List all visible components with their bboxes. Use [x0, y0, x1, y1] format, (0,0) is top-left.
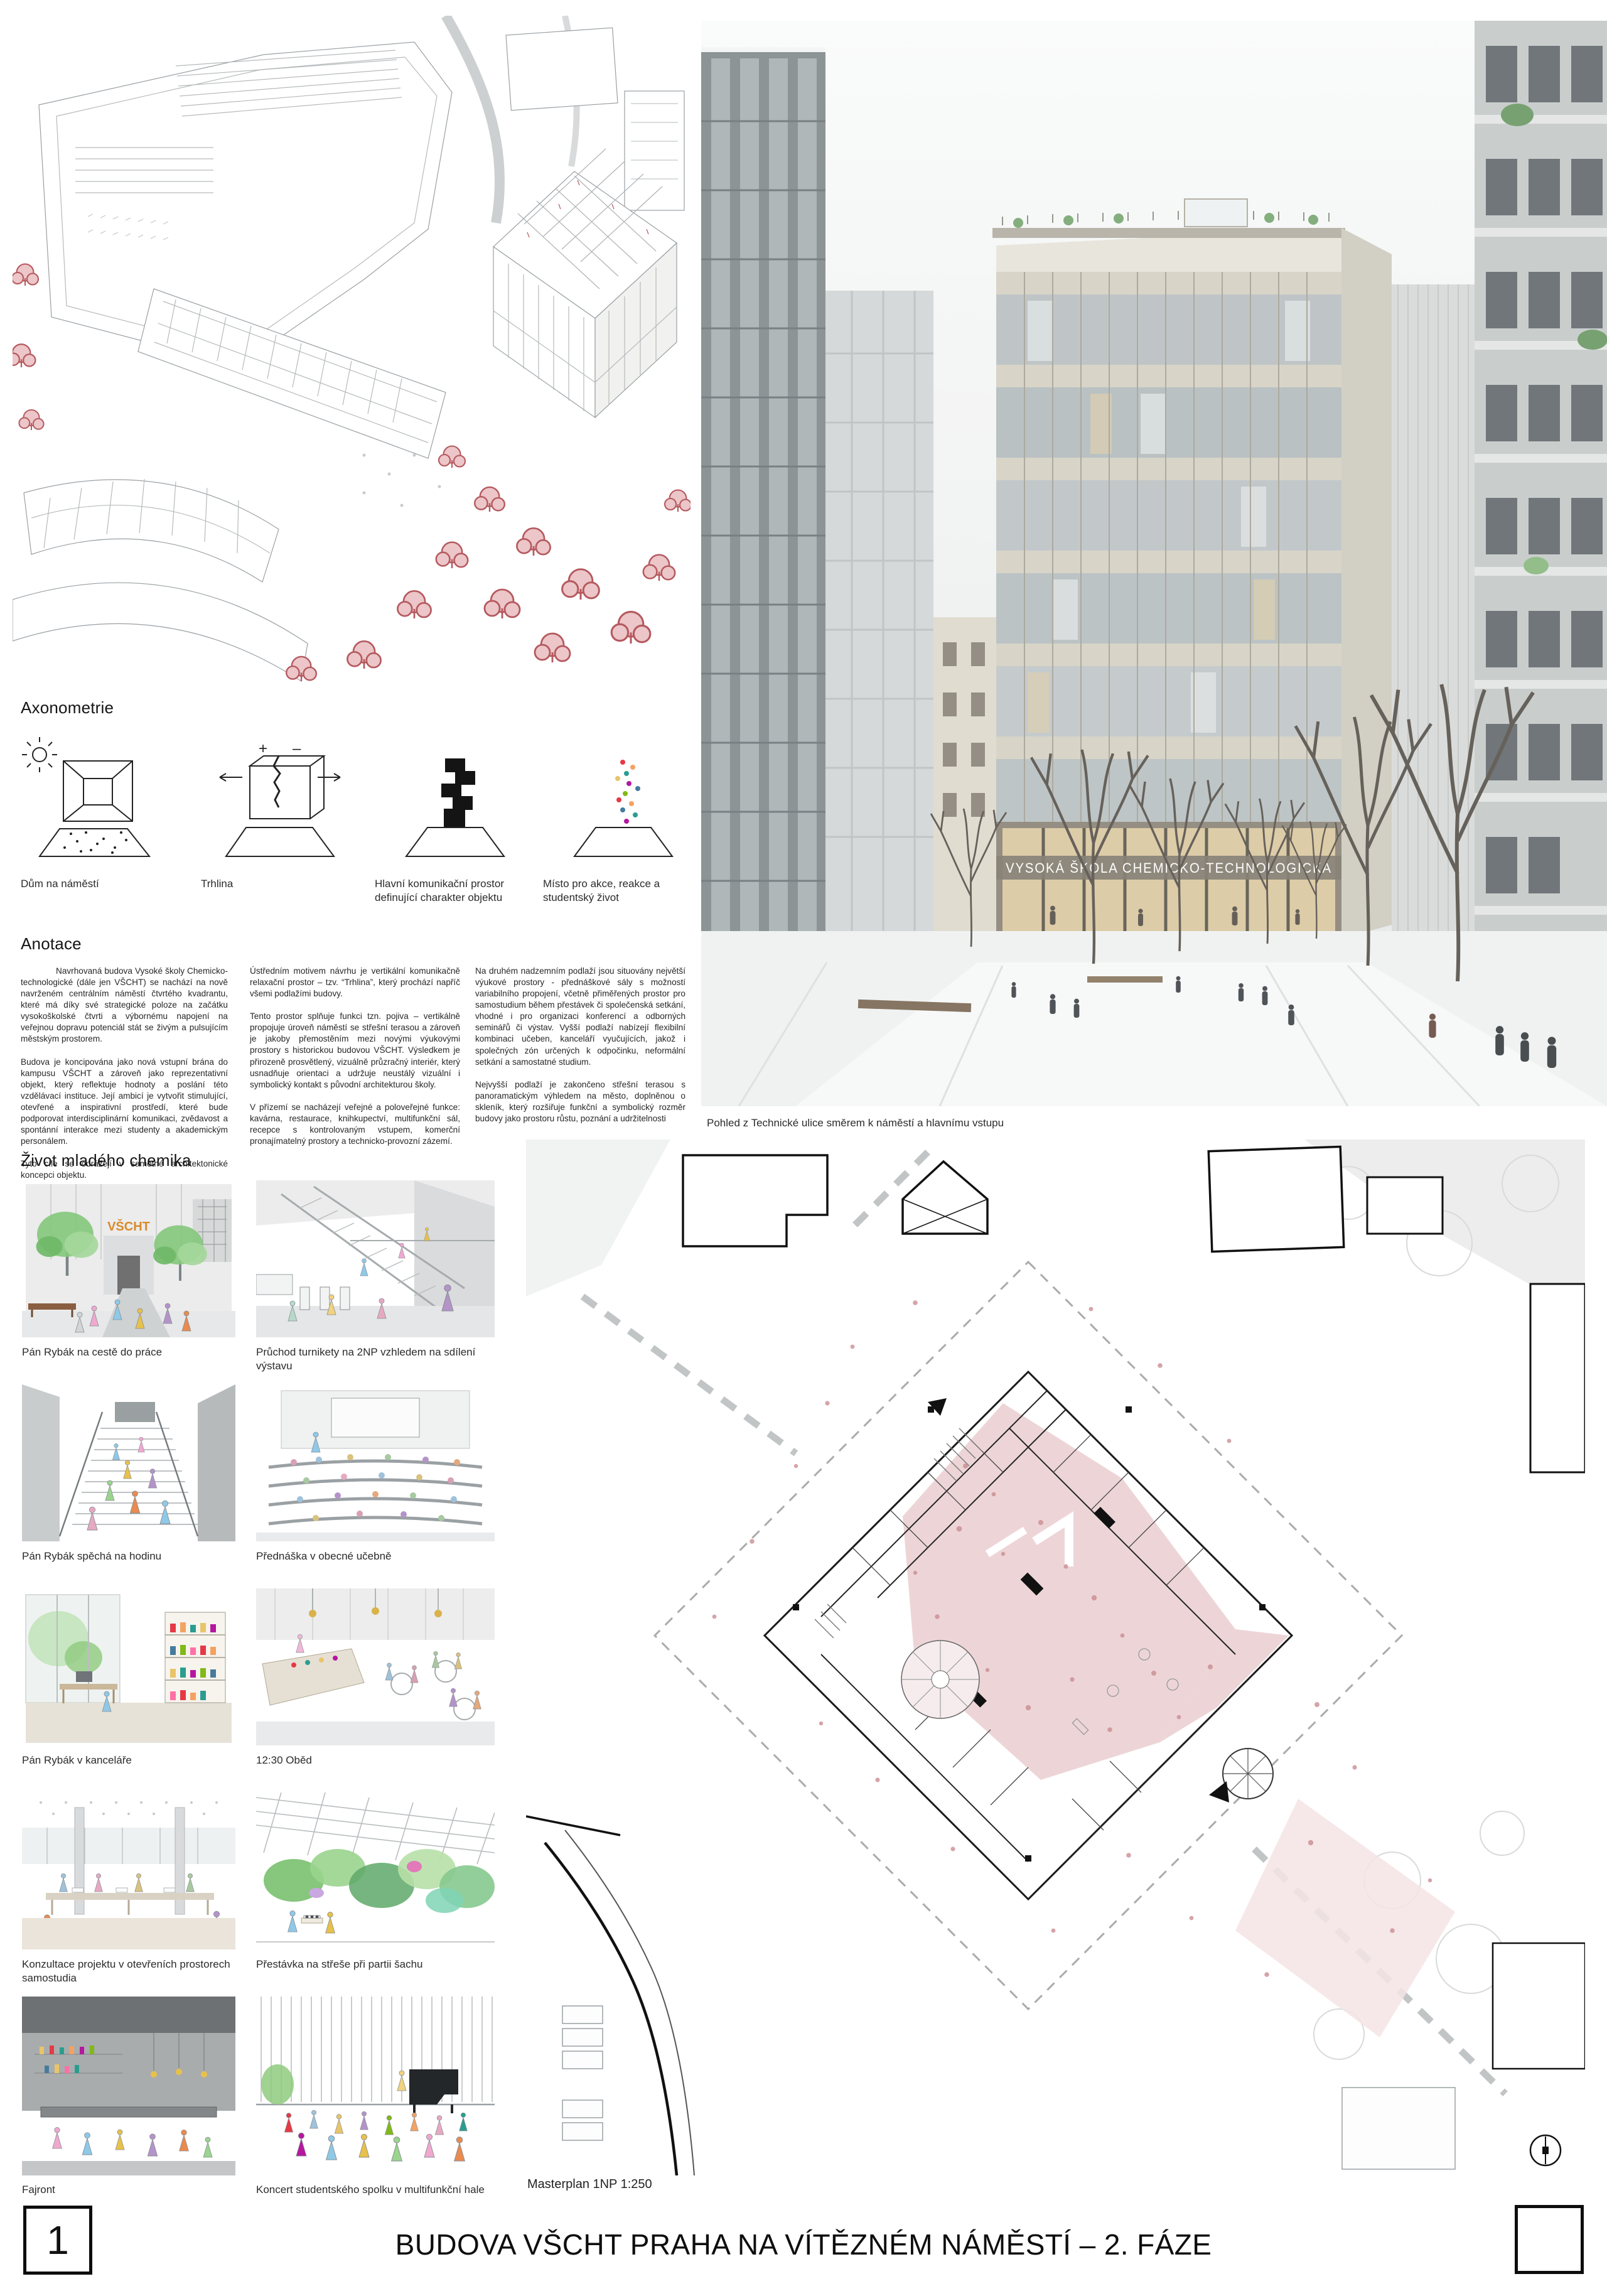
empty-footer-box: [1515, 2205, 1584, 2274]
vignette-office-sketch: [22, 1588, 235, 1745]
vignette-caption: Fajront: [22, 2183, 235, 2197]
day-in-life-heading: Život mladého chemika: [21, 1151, 191, 1170]
competition-board: Axonometrie Dům na náměstí: [0, 0, 1607, 2296]
vignette-caption: Pán Rybák v kanceláře: [22, 1754, 235, 1767]
annotation-paragraph: Ústředním motivem návrhu je vertikální k…: [250, 966, 460, 1000]
axonometric-drawing: [13, 16, 691, 694]
annotation-column-3: Na druhém nadzemním podlaží jsou situová…: [475, 966, 685, 1136]
spiral-stair-icon: [901, 1641, 979, 1718]
vignette-stair-sketch: [22, 1384, 235, 1541]
vignette-caption: 12:30 Oběd: [256, 1754, 495, 1767]
vignette-caption: Přednáška v obecné učebně: [256, 1550, 495, 1563]
hero-caption: Pohled z Technické ulice směrem k náměst…: [707, 1116, 1004, 1130]
axonometry-heading: Axonometrie: [21, 698, 114, 718]
vignette-turnstiles-sketch: [256, 1180, 495, 1337]
vignette-lecture-sketch: [256, 1384, 495, 1541]
vignette-caption: Přestávka na střeše při partii šachu: [256, 1958, 495, 1971]
annotation-paragraph: V přízemí se nacházejí veřejné a poloveř…: [250, 1102, 460, 1147]
annotation-paragraph: Tento prostor splňuje funkci tzn. pojiva…: [250, 1011, 460, 1091]
vignette-caption: Pán Rybák na cestě do práce: [22, 1345, 235, 1359]
vignette-fajront-sketch: [22, 1997, 235, 2175]
annotation-paragraph: Nejvyšší podlaží je zakončeno střešní te…: [475, 1079, 685, 1124]
concept-caption: Místo pro akce, reakce a studentský živo…: [543, 877, 691, 905]
concept-caption: Dům na náměstí: [21, 877, 165, 891]
vignette-caption: Koncert studentského spolku v multifunkč…: [256, 2183, 495, 2197]
sketch-vscht-signage: VŠCHT: [107, 1219, 150, 1234]
concept-caption: Trhlina: [201, 877, 345, 891]
north-compass-icon: [1530, 2135, 1561, 2165]
black-zigzag-core-icon: [375, 733, 532, 868]
vignette-concert-sketch: [256, 1997, 495, 2175]
piano-icon: [409, 2069, 458, 2113]
crack-sketch-icon: + –: [201, 733, 358, 868]
masterplan-label: Masterplan 1NP 1:250: [527, 2177, 652, 2192]
annotation-paragraph: Budova je koncipována jako nová vstupní …: [21, 1057, 228, 1148]
vignette-plaza-sketch: VŠCHT: [22, 1180, 235, 1337]
concept-student-life: Místo pro akce, reakce a studentský živo…: [543, 733, 700, 905]
vignette-caption: Konzultace projektu v otevřeních prostor…: [22, 1958, 235, 1985]
vignette-canteen-sketch: [256, 1588, 495, 1745]
concept-crack: + – Trhlina: [201, 733, 358, 891]
roof-plants: [264, 1849, 495, 1913]
sun-icon: [33, 748, 46, 762]
sheet-number: 1: [46, 2217, 69, 2263]
confetti-zigzag-icon: [543, 733, 700, 868]
vignette-caption: Průchod turnikety na 2NP vzhledem na sdí…: [256, 1345, 495, 1373]
annotation-column-2: Ústředním motivem návrhu je vertikální k…: [250, 966, 460, 1158]
concept-house-on-square: Dům na náměstí: [21, 733, 178, 891]
concept-vertical-core: Hlavní komunikační prostor definující ch…: [375, 733, 532, 905]
hero-render: VYSOKÁ ŠKOLA CHEMICKO-TECHNOLOGICKÁ: [701, 21, 1607, 1106]
annotation-heading: Anotace: [21, 934, 82, 954]
board-title: BUDOVA VŠCHT PRAHA NA VÍTĚZNÉM NÁMĚSTÍ –…: [176, 2228, 1431, 2261]
annotation-paragraph: Navrhovaná budova Vysoké školy Chemicko-…: [21, 966, 228, 1045]
house-on-square-sketch-icon: [21, 733, 178, 868]
minus-mark: –: [293, 740, 301, 757]
annotation-paragraph: Na druhém nadzemním podlaží jsou situová…: [475, 966, 685, 1068]
vignette-roof-sketch: [256, 1792, 495, 1949]
sheet-number-box: 1: [23, 2206, 92, 2275]
plus-mark: +: [259, 740, 267, 757]
vignette-caption: Pán Rybák spěchá na hodinu: [22, 1550, 235, 1563]
masterplan-drawing: [526, 1140, 1585, 2175]
concept-caption: Hlavní komunikační prostor definující ch…: [375, 877, 516, 905]
vignette-study-sketch: [22, 1792, 235, 1949]
